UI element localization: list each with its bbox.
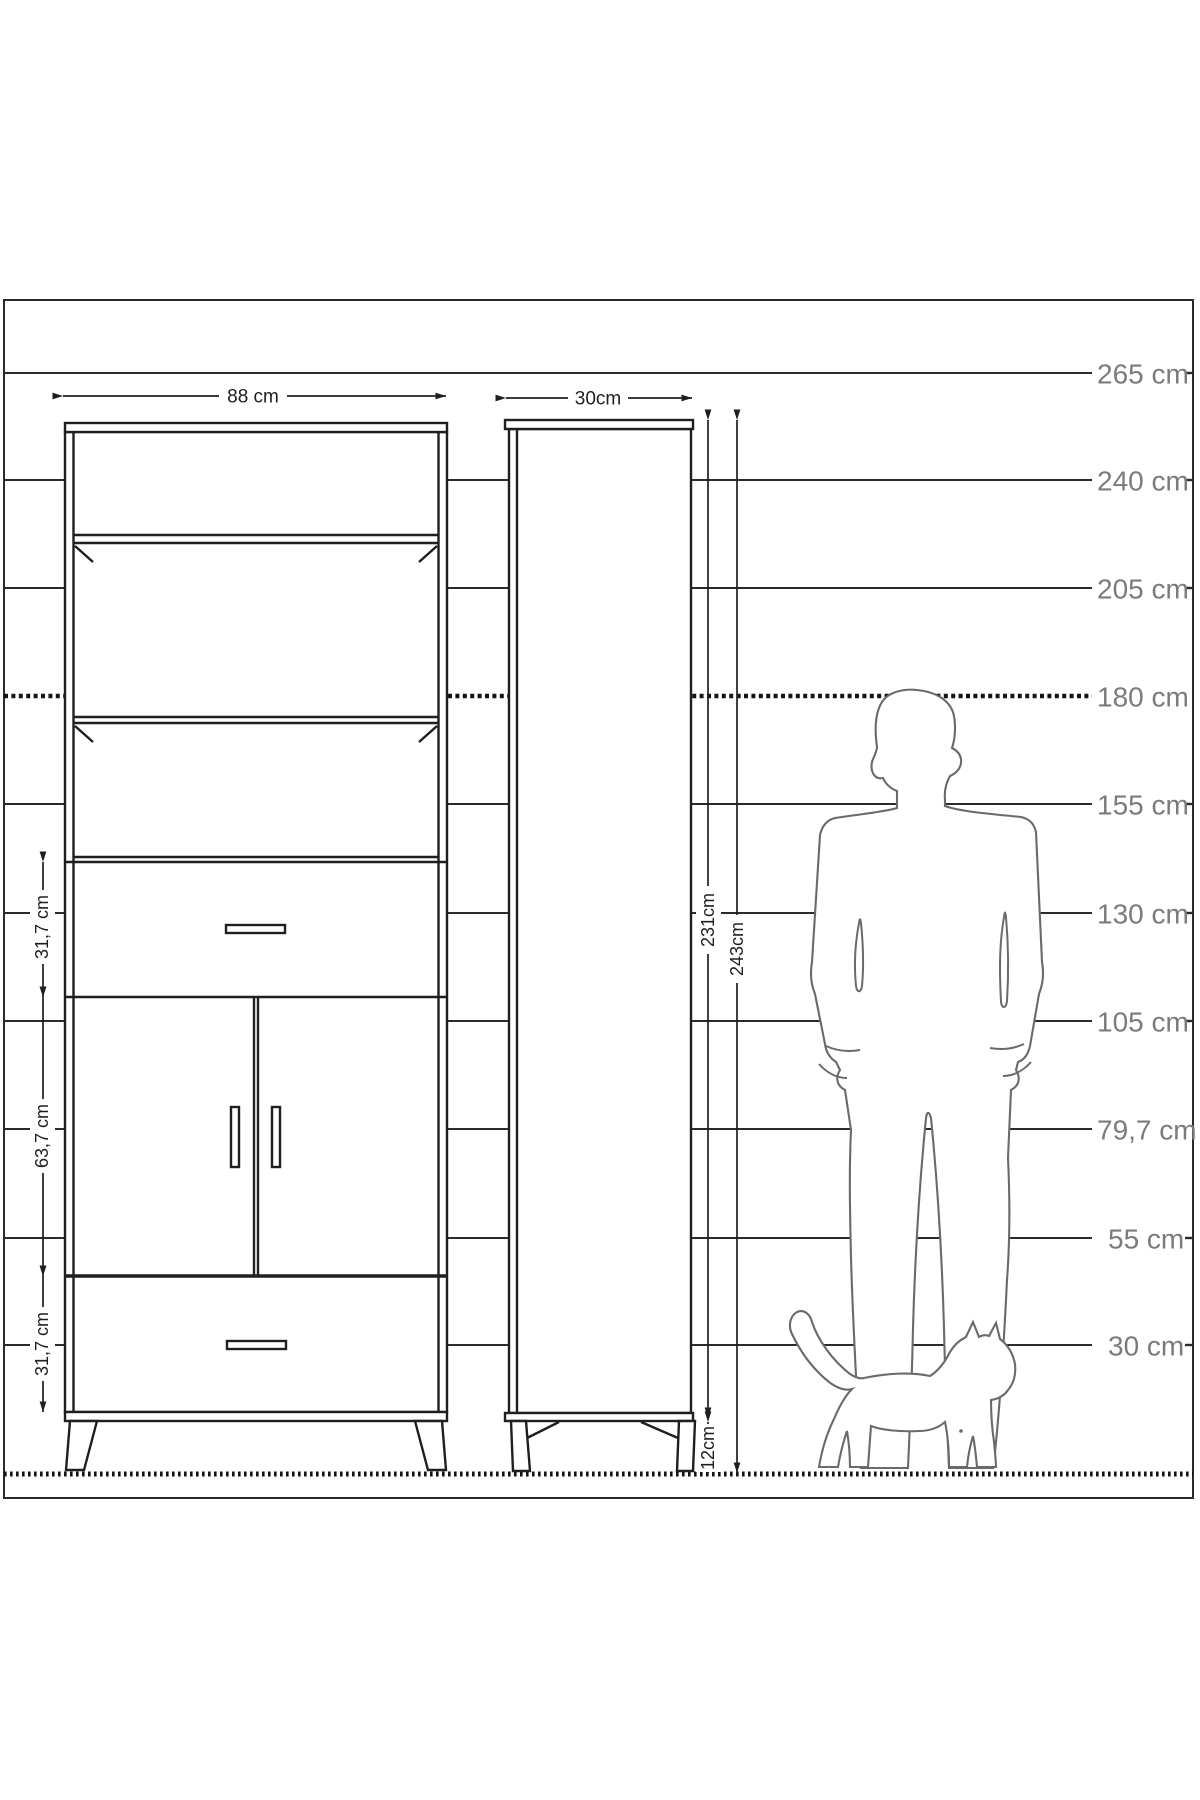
front-bottom-board (65, 1412, 447, 1421)
height-scale-label: 79,7 cm (1097, 1115, 1197, 1146)
height-scale-label: 30 cm (1108, 1331, 1184, 1362)
front-width-dimension: 88 cm (63, 383, 446, 409)
front-width-label: 88 cm (227, 387, 279, 408)
cabinet-side-view (505, 420, 695, 1471)
front-top-board (65, 423, 447, 432)
height-scale-label: 265 cm (1097, 359, 1189, 390)
side-leg-back (677, 1421, 695, 1471)
side-top-board (505, 420, 693, 429)
front-leg-right (415, 1421, 446, 1470)
doors-height-label: 63,7 cm (32, 1104, 52, 1168)
front-leg-left (66, 1421, 97, 1470)
height-scale-label: 155 cm (1097, 790, 1189, 821)
height-scale-label: 105 cm (1097, 1007, 1189, 1038)
cabinet-front-view (65, 423, 447, 1470)
leg-height-label: 12cm (698, 1426, 718, 1470)
door-handle-left (231, 1107, 239, 1167)
dimension-diagram-canvas: 88 cm 30cm 31,7 cm 63,7 cm 31,7 cm 231cm… (0, 0, 1200, 1800)
height-scale: 265 cm 240 cm 205 cm 180 cm 155 cm 130 c… (1097, 359, 1197, 1362)
height-scale-label: 55 cm (1108, 1224, 1184, 1255)
lower-drawer-height-label: 31,7 cm (32, 1312, 52, 1376)
side-leg-back-brace (641, 1422, 678, 1438)
side-depth-label: 30cm (575, 389, 621, 410)
lower-drawer-handle (227, 1341, 286, 1349)
front-section-dimensions: 31,7 cm 63,7 cm 31,7 cm (30, 862, 55, 1412)
furniture-dimension-diagram-page: 88 cm 30cm 31,7 cm 63,7 cm 31,7 cm 231cm… (0, 0, 1200, 1800)
side-bottom-board (505, 1413, 693, 1421)
front-body (65, 432, 447, 1412)
side-body (509, 429, 691, 1413)
upper-drawer-handle (226, 925, 285, 933)
height-scale-label: 240 cm (1097, 466, 1189, 497)
side-leg-front-brace (527, 1422, 559, 1438)
height-scale-label: 180 cm (1097, 682, 1189, 713)
upper-drawer-height-label: 31,7 cm (32, 895, 52, 959)
side-depth-dimension: 30cm (506, 385, 692, 411)
height-scale-label: 205 cm (1097, 574, 1189, 605)
height-scale-label: 130 cm (1097, 899, 1189, 930)
body-height-label: 231cm (698, 893, 718, 947)
side-leg-front (511, 1421, 530, 1471)
side-height-dimensions: 231cm 12cm 243cm (696, 420, 750, 1473)
total-height-label: 243cm (727, 922, 747, 976)
door-handle-right (272, 1107, 280, 1167)
cat-hip-dot (959, 1429, 963, 1433)
